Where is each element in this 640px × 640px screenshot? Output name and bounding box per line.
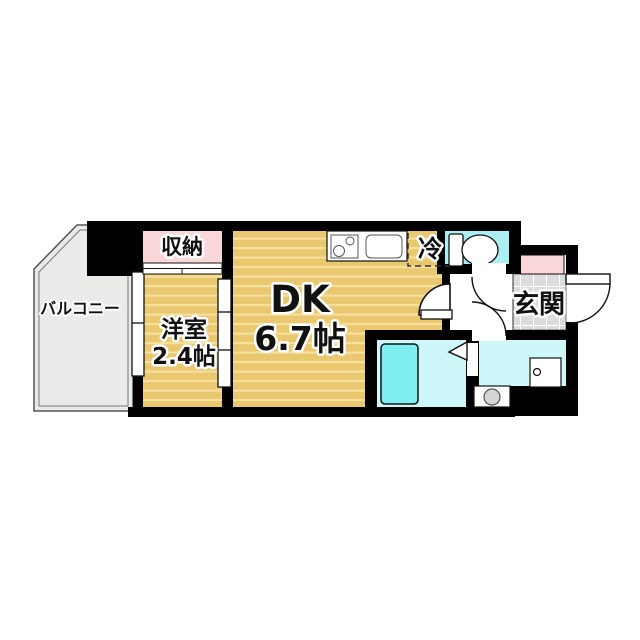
wall-corner-mass: [87, 221, 143, 276]
toilet-door-opening: [472, 263, 506, 275]
wall-toilet-bottom-right: [506, 264, 513, 274]
entry-door-leaf: [566, 274, 610, 284]
entrance-label: 玄関: [513, 289, 565, 320]
western-room-label: 洋室: [161, 316, 207, 343]
toilet-icon: [449, 234, 498, 266]
shoe-cabinet: [520, 255, 564, 274]
bathtub: [381, 344, 418, 404]
washing-machine-drum: [484, 389, 500, 405]
wall-bathroom-top: [365, 330, 472, 340]
toilet-tank: [449, 234, 463, 266]
westernroom-dk-sliding-door: [218, 279, 231, 387]
toilet-bowl: [462, 235, 498, 265]
closet-label: 収納: [161, 235, 203, 259]
western-room-size-label: 2.4帖: [152, 344, 216, 370]
wall-bottom: [128, 407, 515, 417]
wall-washroom-top-right: [506, 330, 578, 340]
wall-top: [133, 221, 520, 231]
bathroom-door-opening: [467, 343, 478, 376]
vanity-drain: [534, 369, 541, 376]
refrigerator-label: 冷: [418, 235, 442, 263]
entry-door-swing: [570, 283, 610, 323]
wall-dk-bathroom: [365, 330, 377, 407]
dk-door-leaf: [421, 310, 452, 319]
sink-icon: [366, 235, 402, 258]
washroom-door-opening: [472, 329, 506, 341]
dk-size-label: 6.7帖: [254, 319, 345, 358]
wall-right-upper: [566, 245, 578, 274]
floor-plan: バルコニー 収納 洋室 2.4帖 DK 6.7帖 冷 玄関: [0, 0, 640, 640]
floor-plan-page: バルコニー 収納 洋室 2.4帖 DK 6.7帖 冷 玄関: [0, 0, 640, 640]
dk-label: DK: [270, 278, 331, 321]
balcony-label: バルコニー: [40, 299, 120, 318]
wall-bottom-right-chunk: [506, 386, 578, 416]
balcony-window: [132, 272, 144, 376]
